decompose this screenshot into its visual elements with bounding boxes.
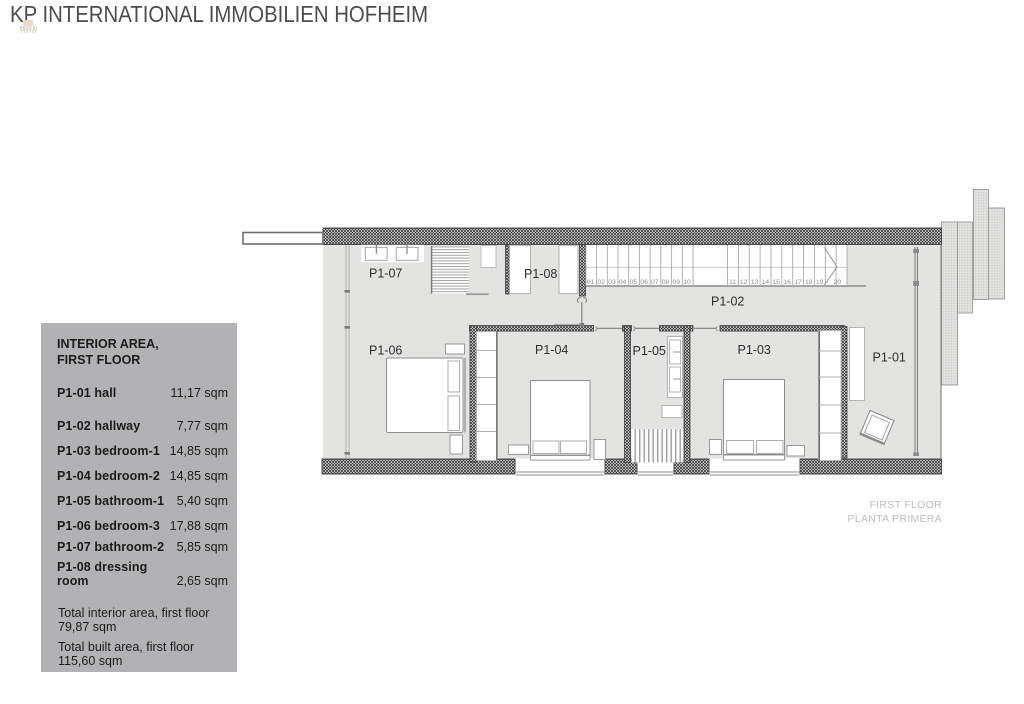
svg-text:06: 06 <box>640 279 648 286</box>
svg-text:18: 18 <box>805 279 813 286</box>
svg-text:03: 03 <box>608 279 616 286</box>
svg-text:11: 11 <box>729 279 736 286</box>
svg-text:20: 20 <box>834 279 842 286</box>
svg-text:P1-07: P1-07 <box>369 267 402 281</box>
svg-text:P1-02: P1-02 <box>711 295 744 309</box>
svg-text:10: 10 <box>683 279 691 286</box>
svg-text:04: 04 <box>619 279 627 286</box>
svg-text:15: 15 <box>773 279 781 286</box>
svg-text:19: 19 <box>816 279 824 286</box>
svg-text:P1-05: P1-05 <box>633 344 666 358</box>
svg-text:02: 02 <box>598 279 606 286</box>
svg-text:07: 07 <box>651 279 659 286</box>
svg-text:P1-04: P1-04 <box>535 343 568 357</box>
svg-text:14: 14 <box>762 279 770 286</box>
svg-text:01: 01 <box>587 279 595 286</box>
svg-text:12: 12 <box>740 279 748 286</box>
svg-text:13: 13 <box>751 279 759 286</box>
svg-text:P1-08: P1-08 <box>524 267 557 281</box>
svg-text:05: 05 <box>630 279 638 286</box>
svg-text:P1-06: P1-06 <box>369 344 402 358</box>
svg-text:16: 16 <box>783 279 791 286</box>
svg-text:P1-01: P1-01 <box>873 351 906 365</box>
svg-text:17: 17 <box>794 279 802 286</box>
svg-text:08: 08 <box>662 279 670 286</box>
svg-text:P1-03: P1-03 <box>738 343 771 357</box>
svg-text:09: 09 <box>673 279 681 286</box>
